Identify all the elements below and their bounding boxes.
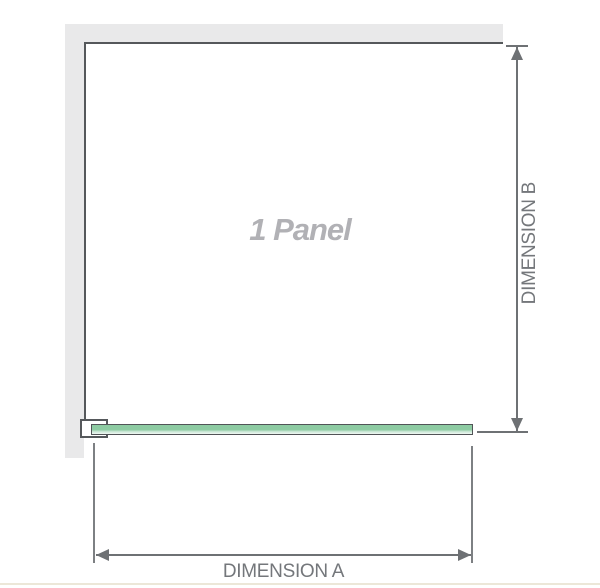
panel-top-edge: [84, 42, 503, 44]
bottom-divider: [0, 583, 600, 585]
dimension-a-right-extension: [471, 446, 473, 563]
arrow-right-icon: [458, 549, 471, 561]
dimension-a-label: DIMENSION A: [96, 561, 471, 583]
wall-top: [65, 24, 503, 42]
panel-left-edge: [84, 42, 86, 420]
glass-panel: [91, 424, 473, 435]
wall-left: [65, 24, 84, 458]
panel-label: 1 Panel: [200, 212, 400, 248]
dimension-a-line: [96, 554, 471, 556]
dimension-b-bottom-tick: [477, 431, 528, 433]
dimension-b-line: [516, 47, 518, 431]
arrow-up-icon: [511, 47, 523, 60]
dimension-b-label: DIMENSION B: [519, 182, 541, 304]
arrow-left-icon: [96, 549, 109, 561]
arrow-down-icon: [511, 418, 523, 431]
dimension-a-left-extension: [93, 443, 95, 563]
panel-dimension-diagram: 1 Panel DIMENSION B DIMENSION A: [0, 0, 600, 588]
